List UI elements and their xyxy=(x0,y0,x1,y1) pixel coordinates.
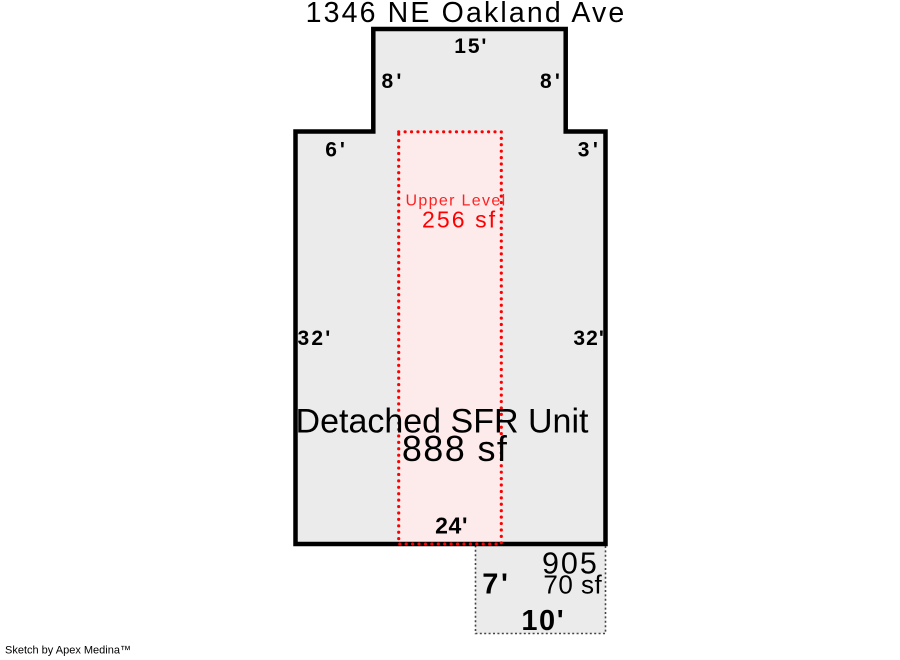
svg-text:32': 32' xyxy=(573,327,605,350)
svg-text:32': 32' xyxy=(298,327,333,350)
svg-text:1346 NE Oakland Ave: 1346 NE Oakland Ave xyxy=(306,0,627,29)
svg-text:6': 6' xyxy=(325,138,347,161)
svg-text:888 sf: 888 sf xyxy=(402,428,508,469)
svg-text:15': 15' xyxy=(454,35,488,58)
svg-text:8': 8' xyxy=(540,70,563,93)
svg-text:256 sf: 256 sf xyxy=(422,207,497,233)
svg-text:10': 10' xyxy=(521,605,565,637)
svg-text:7': 7' xyxy=(482,569,510,601)
svg-text:8': 8' xyxy=(382,70,405,93)
svg-text:3': 3' xyxy=(578,138,601,161)
svg-text:Sketch by Apex Medina™: Sketch by Apex Medina™ xyxy=(5,645,131,657)
svg-text:24': 24' xyxy=(435,513,468,539)
svg-text:70 sf: 70 sf xyxy=(543,570,602,600)
